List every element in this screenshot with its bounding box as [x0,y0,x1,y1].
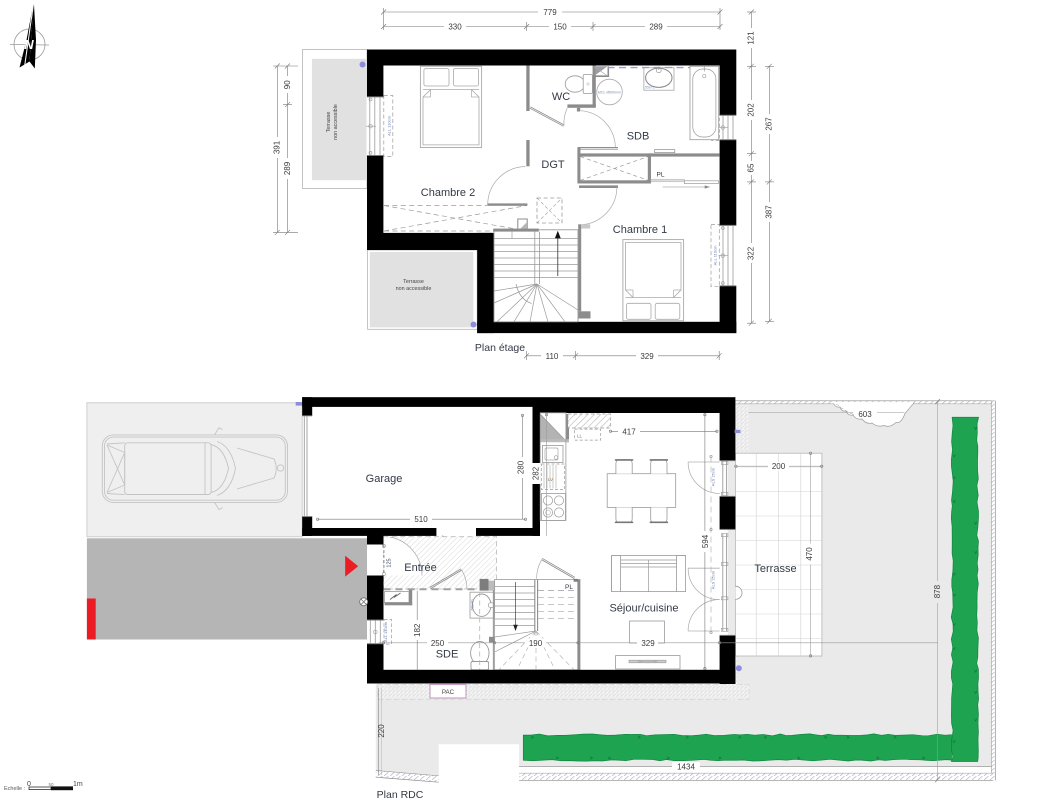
svg-text:190: 190 [529,639,543,648]
svg-text:Séjour/cuisine: Séjour/cuisine [609,603,678,615]
svg-text:289: 289 [649,23,663,32]
svg-text:220: 220 [377,724,386,738]
svg-text:ALS 25cm: ALS 25cm [710,467,715,486]
svg-text:150: 150 [553,23,567,32]
svg-text:329: 329 [641,639,655,648]
svg-text:55x71: 55x71 [645,86,655,90]
svg-text:Chambre 1: Chambre 1 [613,224,667,236]
svg-text:ALL 110cm: ALL 110cm [386,115,391,135]
svg-text:329: 329 [640,352,654,361]
svg-text:Plan étage: Plan étage [475,342,525,354]
svg-text:60x40: 60x40 [470,599,475,611]
svg-text:322: 322 [747,246,756,260]
svg-text:330: 330 [448,23,462,32]
svg-text:WC: WC [552,91,570,103]
svg-text:ALL 140cm: ALL 140cm [383,621,388,642]
svg-text:PAC: PAC [442,689,455,696]
svg-text:DGT: DGT [541,159,565,171]
svg-text:510: 510 [414,515,428,524]
svg-text:1434: 1434 [677,763,695,772]
svg-text:470: 470 [805,547,814,561]
svg-text:Terrasse: Terrasse [326,112,332,133]
svg-text:202: 202 [747,103,756,117]
svg-text:N: N [24,37,34,52]
svg-text:90: 90 [283,80,292,89]
svg-text:250: 250 [431,639,445,648]
svg-text:MCL Ø600mm: MCL Ø600mm [598,91,621,95]
svg-text:779: 779 [543,8,557,17]
svg-text:1m: 1m [73,781,83,788]
svg-text:65: 65 [747,163,756,172]
svg-text:Plan RDC: Plan RDC [377,789,424,800]
svg-text:Terrasse: Terrasse [403,279,424,285]
svg-text:280: 280 [517,460,526,474]
svg-text:Entrée: Entrée [404,562,436,574]
svg-text:SDB: SDB [627,131,650,143]
svg-text:282: 282 [532,466,541,480]
svg-text:387: 387 [765,205,774,219]
svg-text:Chambre 2: Chambre 2 [421,187,475,199]
svg-text:110: 110 [546,352,559,361]
svg-text:PL: PL [657,172,665,179]
svg-text:289: 289 [283,161,292,175]
svg-text:ALL 110cm: ALL 110cm [712,245,717,265]
svg-text:182: 182 [413,623,422,637]
svg-text:121: 121 [747,31,756,45]
svg-text:Garage: Garage [366,473,403,485]
svg-text:Terrasse: Terrasse [754,563,796,575]
svg-text:878: 878 [933,584,942,598]
svg-text:603: 603 [858,410,872,419]
svg-text:LL: LL [577,434,583,439]
svg-text:PL: PL [565,584,573,591]
svg-text:SDE: SDE [436,649,459,661]
svg-text:50: 50 [48,782,54,787]
svg-text:267: 267 [765,117,774,131]
svg-text:non accessible: non accessible [333,104,339,140]
svg-text:417: 417 [622,427,636,436]
svg-text:594: 594 [701,534,710,548]
svg-text:125: 125 [387,558,393,567]
svg-text:Echelle :: Echelle : [4,786,26,792]
svg-text:391: 391 [273,140,282,154]
svg-text:200: 200 [772,462,786,471]
svg-text:LV: LV [548,477,553,482]
svg-text:ALS 25cm: ALS 25cm [710,570,715,589]
svg-text:non accessible: non accessible [396,286,432,292]
